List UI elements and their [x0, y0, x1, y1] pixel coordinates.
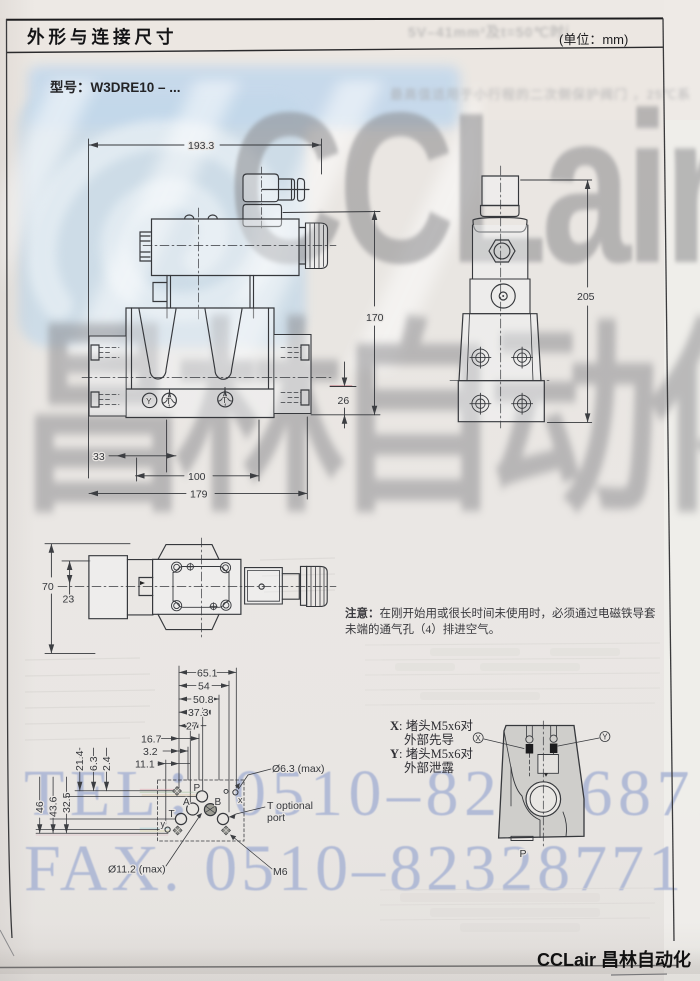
svg-text:3.2: 3.2	[143, 746, 158, 758]
svg-text:54: 54	[198, 681, 210, 693]
svg-text:46: 46	[34, 801, 46, 813]
svg-text:2.4: 2.4	[101, 756, 113, 771]
svg-text:Ø6.3 (max): Ø6.3 (max)	[272, 763, 325, 775]
svg-text:P: P	[520, 848, 527, 860]
svg-text:6.3: 6.3	[88, 756, 100, 771]
svg-text:43.6: 43.6	[48, 796, 60, 817]
svg-text:16.7: 16.7	[141, 734, 162, 746]
svg-text:T: T	[222, 395, 227, 405]
svg-text:50.8: 50.8	[193, 694, 214, 706]
svg-text:Ø11.2 (max): Ø11.2 (max)	[108, 864, 166, 876]
svg-text:21.4: 21.4	[74, 750, 86, 771]
svg-text:y: y	[161, 819, 166, 829]
svg-text:M6: M6	[273, 866, 288, 878]
svg-text:Y: Y	[146, 396, 152, 406]
svg-text:27: 27	[186, 721, 198, 733]
svg-text:Y: Y	[602, 733, 608, 742]
svg-text:179: 179	[190, 489, 208, 501]
svg-text:23: 23	[63, 594, 75, 606]
svg-text:100: 100	[188, 471, 206, 483]
svg-text:T: T	[169, 809, 175, 820]
svg-text:37.3: 37.3	[188, 707, 209, 719]
svg-text:A: A	[183, 797, 190, 808]
svg-text:170: 170	[366, 312, 384, 324]
svg-text:33: 33	[93, 451, 105, 463]
svg-text:P: P	[194, 783, 201, 794]
svg-text:205: 205	[577, 291, 595, 303]
svg-text:B: B	[215, 797, 222, 808]
svg-text:port: port	[267, 812, 285, 824]
svg-text:70: 70	[42, 581, 54, 593]
svg-text:193.3: 193.3	[188, 140, 214, 152]
svg-text:x: x	[238, 795, 243, 805]
svg-text:26: 26	[338, 395, 350, 407]
svg-text:11.1: 11.1	[135, 759, 155, 771]
svg-text:32.5: 32.5	[61, 792, 73, 813]
svg-text:T: T	[166, 396, 171, 406]
svg-text:65.1: 65.1	[197, 668, 218, 680]
svg-text:T optional: T optional	[267, 800, 313, 812]
